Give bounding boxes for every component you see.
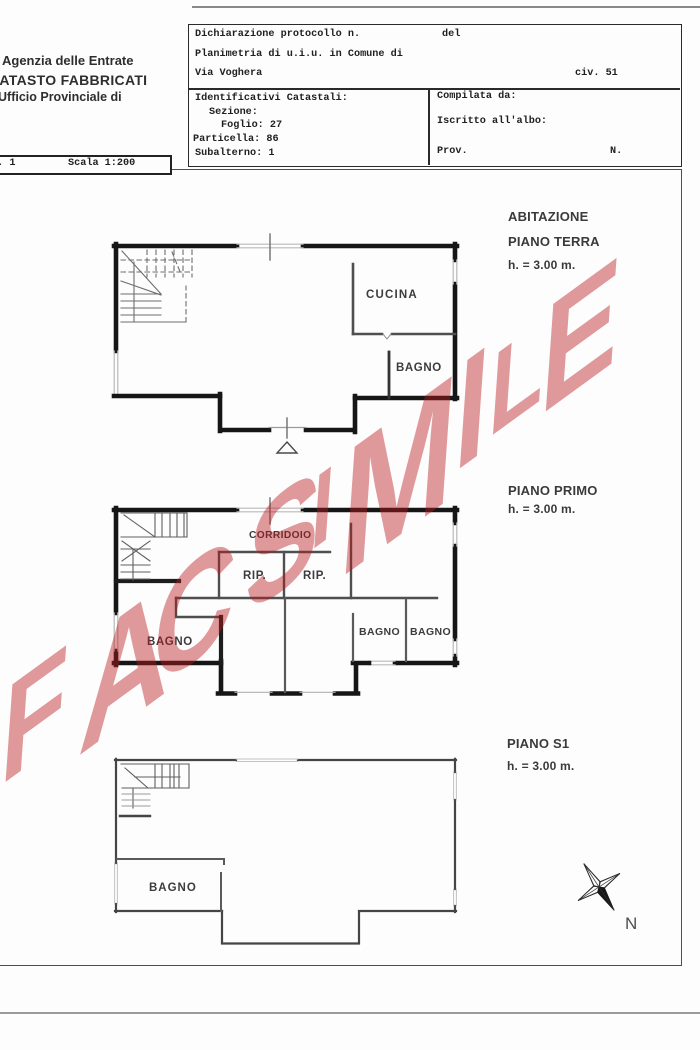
svg-text:BAGNO: BAGNO	[410, 626, 451, 638]
svg-text:E: E	[536, 219, 626, 450]
svg-text:N: N	[625, 914, 637, 933]
svg-text:BAGNO: BAGNO	[149, 882, 197, 894]
svg-text:BAGNO: BAGNO	[359, 626, 400, 638]
svg-text:CUCINA: CUCINA	[366, 289, 418, 301]
svg-text:F: F	[0, 611, 72, 817]
